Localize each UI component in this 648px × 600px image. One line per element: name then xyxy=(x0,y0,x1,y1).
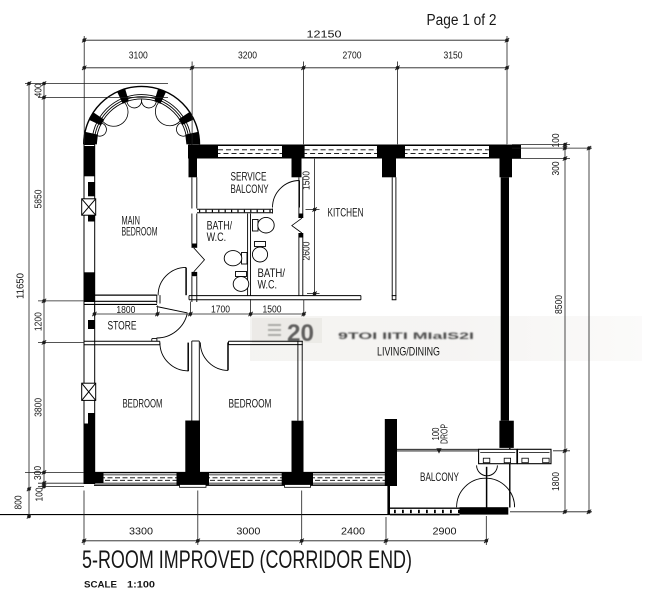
svg-text:400: 400 xyxy=(34,83,45,97)
svg-text:BALCONY: BALCONY xyxy=(420,470,459,484)
svg-text:1200: 1200 xyxy=(34,312,45,331)
svg-text:1:100: 1:100 xyxy=(127,580,155,591)
svg-text:1800: 1800 xyxy=(551,472,562,491)
svg-text:300: 300 xyxy=(551,161,562,175)
svg-text:100: 100 xyxy=(35,487,46,501)
svg-text:2900: 2900 xyxy=(433,527,457,538)
svg-text:KITCHEN: KITCHEN xyxy=(328,206,364,220)
svg-text:2600: 2600 xyxy=(302,241,313,260)
svg-text:8500: 8500 xyxy=(554,295,565,314)
svg-text:BEDROOM: BEDROOM xyxy=(123,397,163,411)
svg-text:3000: 3000 xyxy=(236,527,260,538)
svg-text:W.C.: W.C. xyxy=(258,278,278,292)
svg-text:11650: 11650 xyxy=(16,273,27,299)
svg-text:9TOI IITI MIaIS2I: 9TOI IITI MIaIS2I xyxy=(338,331,474,342)
svg-text:3200: 3200 xyxy=(238,51,257,62)
svg-text:2700: 2700 xyxy=(343,51,362,62)
svg-text:3300: 3300 xyxy=(129,527,153,538)
svg-text:LIVING/DINING: LIVING/DINING xyxy=(377,344,440,358)
svg-text:5-ROOM IMPROVED (CORRIDOR END): 5-ROOM IMPROVED (CORRIDOR END) xyxy=(82,546,412,574)
svg-text:STORE: STORE xyxy=(108,319,137,333)
svg-text:BEDROOM: BEDROOM xyxy=(122,225,158,239)
svg-text:1800: 1800 xyxy=(116,305,135,316)
svg-text:5850: 5850 xyxy=(34,189,45,208)
svg-text:Page 1 of 2: Page 1 of 2 xyxy=(427,12,497,29)
svg-text:12150: 12150 xyxy=(307,30,343,41)
svg-text:BALCONY: BALCONY xyxy=(231,182,269,196)
svg-text:DROP: DROP xyxy=(440,424,451,444)
svg-text:2400: 2400 xyxy=(341,527,365,538)
svg-text:W.C.: W.C. xyxy=(207,230,227,244)
svg-text:1500: 1500 xyxy=(302,171,313,190)
svg-text:3150: 3150 xyxy=(444,51,463,62)
svg-text:1500: 1500 xyxy=(263,305,282,316)
svg-text:3100: 3100 xyxy=(129,51,148,62)
svg-text:1700: 1700 xyxy=(211,305,230,316)
svg-text:300: 300 xyxy=(33,466,44,480)
svg-text:SCALE: SCALE xyxy=(84,580,117,591)
svg-text:3800: 3800 xyxy=(34,398,45,417)
svg-text:20: 20 xyxy=(287,320,314,347)
svg-text:800: 800 xyxy=(14,495,25,509)
svg-text:100: 100 xyxy=(551,133,562,147)
svg-text:BEDROOM: BEDROOM xyxy=(229,396,272,410)
